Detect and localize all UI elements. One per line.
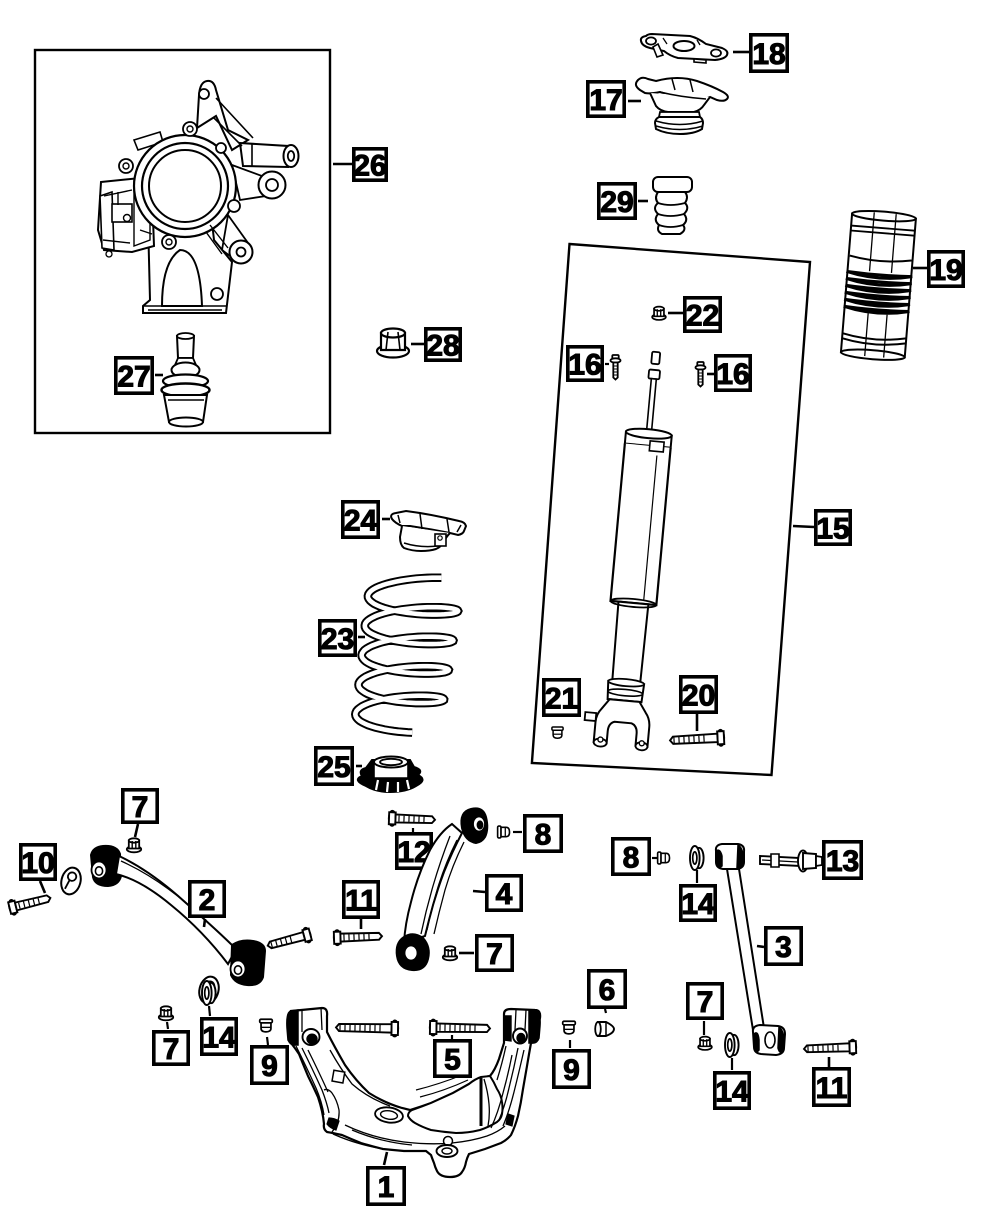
svg-text:15: 15 (816, 512, 849, 545)
svg-text:16: 16 (568, 348, 601, 381)
svg-text:3: 3 (775, 931, 792, 964)
svg-text:26: 26 (353, 149, 386, 182)
svg-text:14: 14 (202, 1021, 236, 1054)
svg-text:22: 22 (686, 299, 719, 332)
svg-text:20: 20 (682, 679, 715, 712)
svg-text:6: 6 (599, 974, 616, 1007)
svg-text:7: 7 (697, 986, 714, 1019)
svg-text:1: 1 (378, 1171, 395, 1204)
svg-text:14: 14 (681, 888, 715, 921)
svg-text:28: 28 (426, 329, 459, 362)
svg-text:2: 2 (199, 884, 216, 917)
svg-text:25: 25 (317, 751, 350, 784)
svg-text:19: 19 (929, 254, 962, 287)
svg-text:7: 7 (486, 938, 503, 971)
svg-text:7: 7 (132, 791, 149, 824)
svg-text:27: 27 (117, 360, 150, 393)
svg-text:13: 13 (826, 845, 859, 878)
svg-text:24: 24 (344, 504, 378, 537)
svg-text:16: 16 (716, 358, 749, 391)
svg-text:14: 14 (715, 1075, 749, 1108)
svg-text:4: 4 (496, 878, 513, 911)
svg-text:7: 7 (163, 1033, 180, 1066)
svg-text:17: 17 (589, 84, 622, 117)
svg-text:11: 11 (816, 1072, 848, 1105)
svg-text:21: 21 (545, 682, 578, 715)
svg-text:11: 11 (345, 884, 377, 917)
svg-text:29: 29 (600, 186, 633, 219)
svg-text:8: 8 (623, 841, 640, 874)
svg-text:5: 5 (444, 1043, 461, 1076)
svg-text:9: 9 (261, 1050, 278, 1083)
svg-text:9: 9 (563, 1054, 580, 1087)
svg-text:23: 23 (321, 623, 354, 656)
svg-text:18: 18 (752, 38, 785, 71)
svg-text:10: 10 (21, 847, 54, 880)
svg-text:8: 8 (535, 818, 552, 851)
